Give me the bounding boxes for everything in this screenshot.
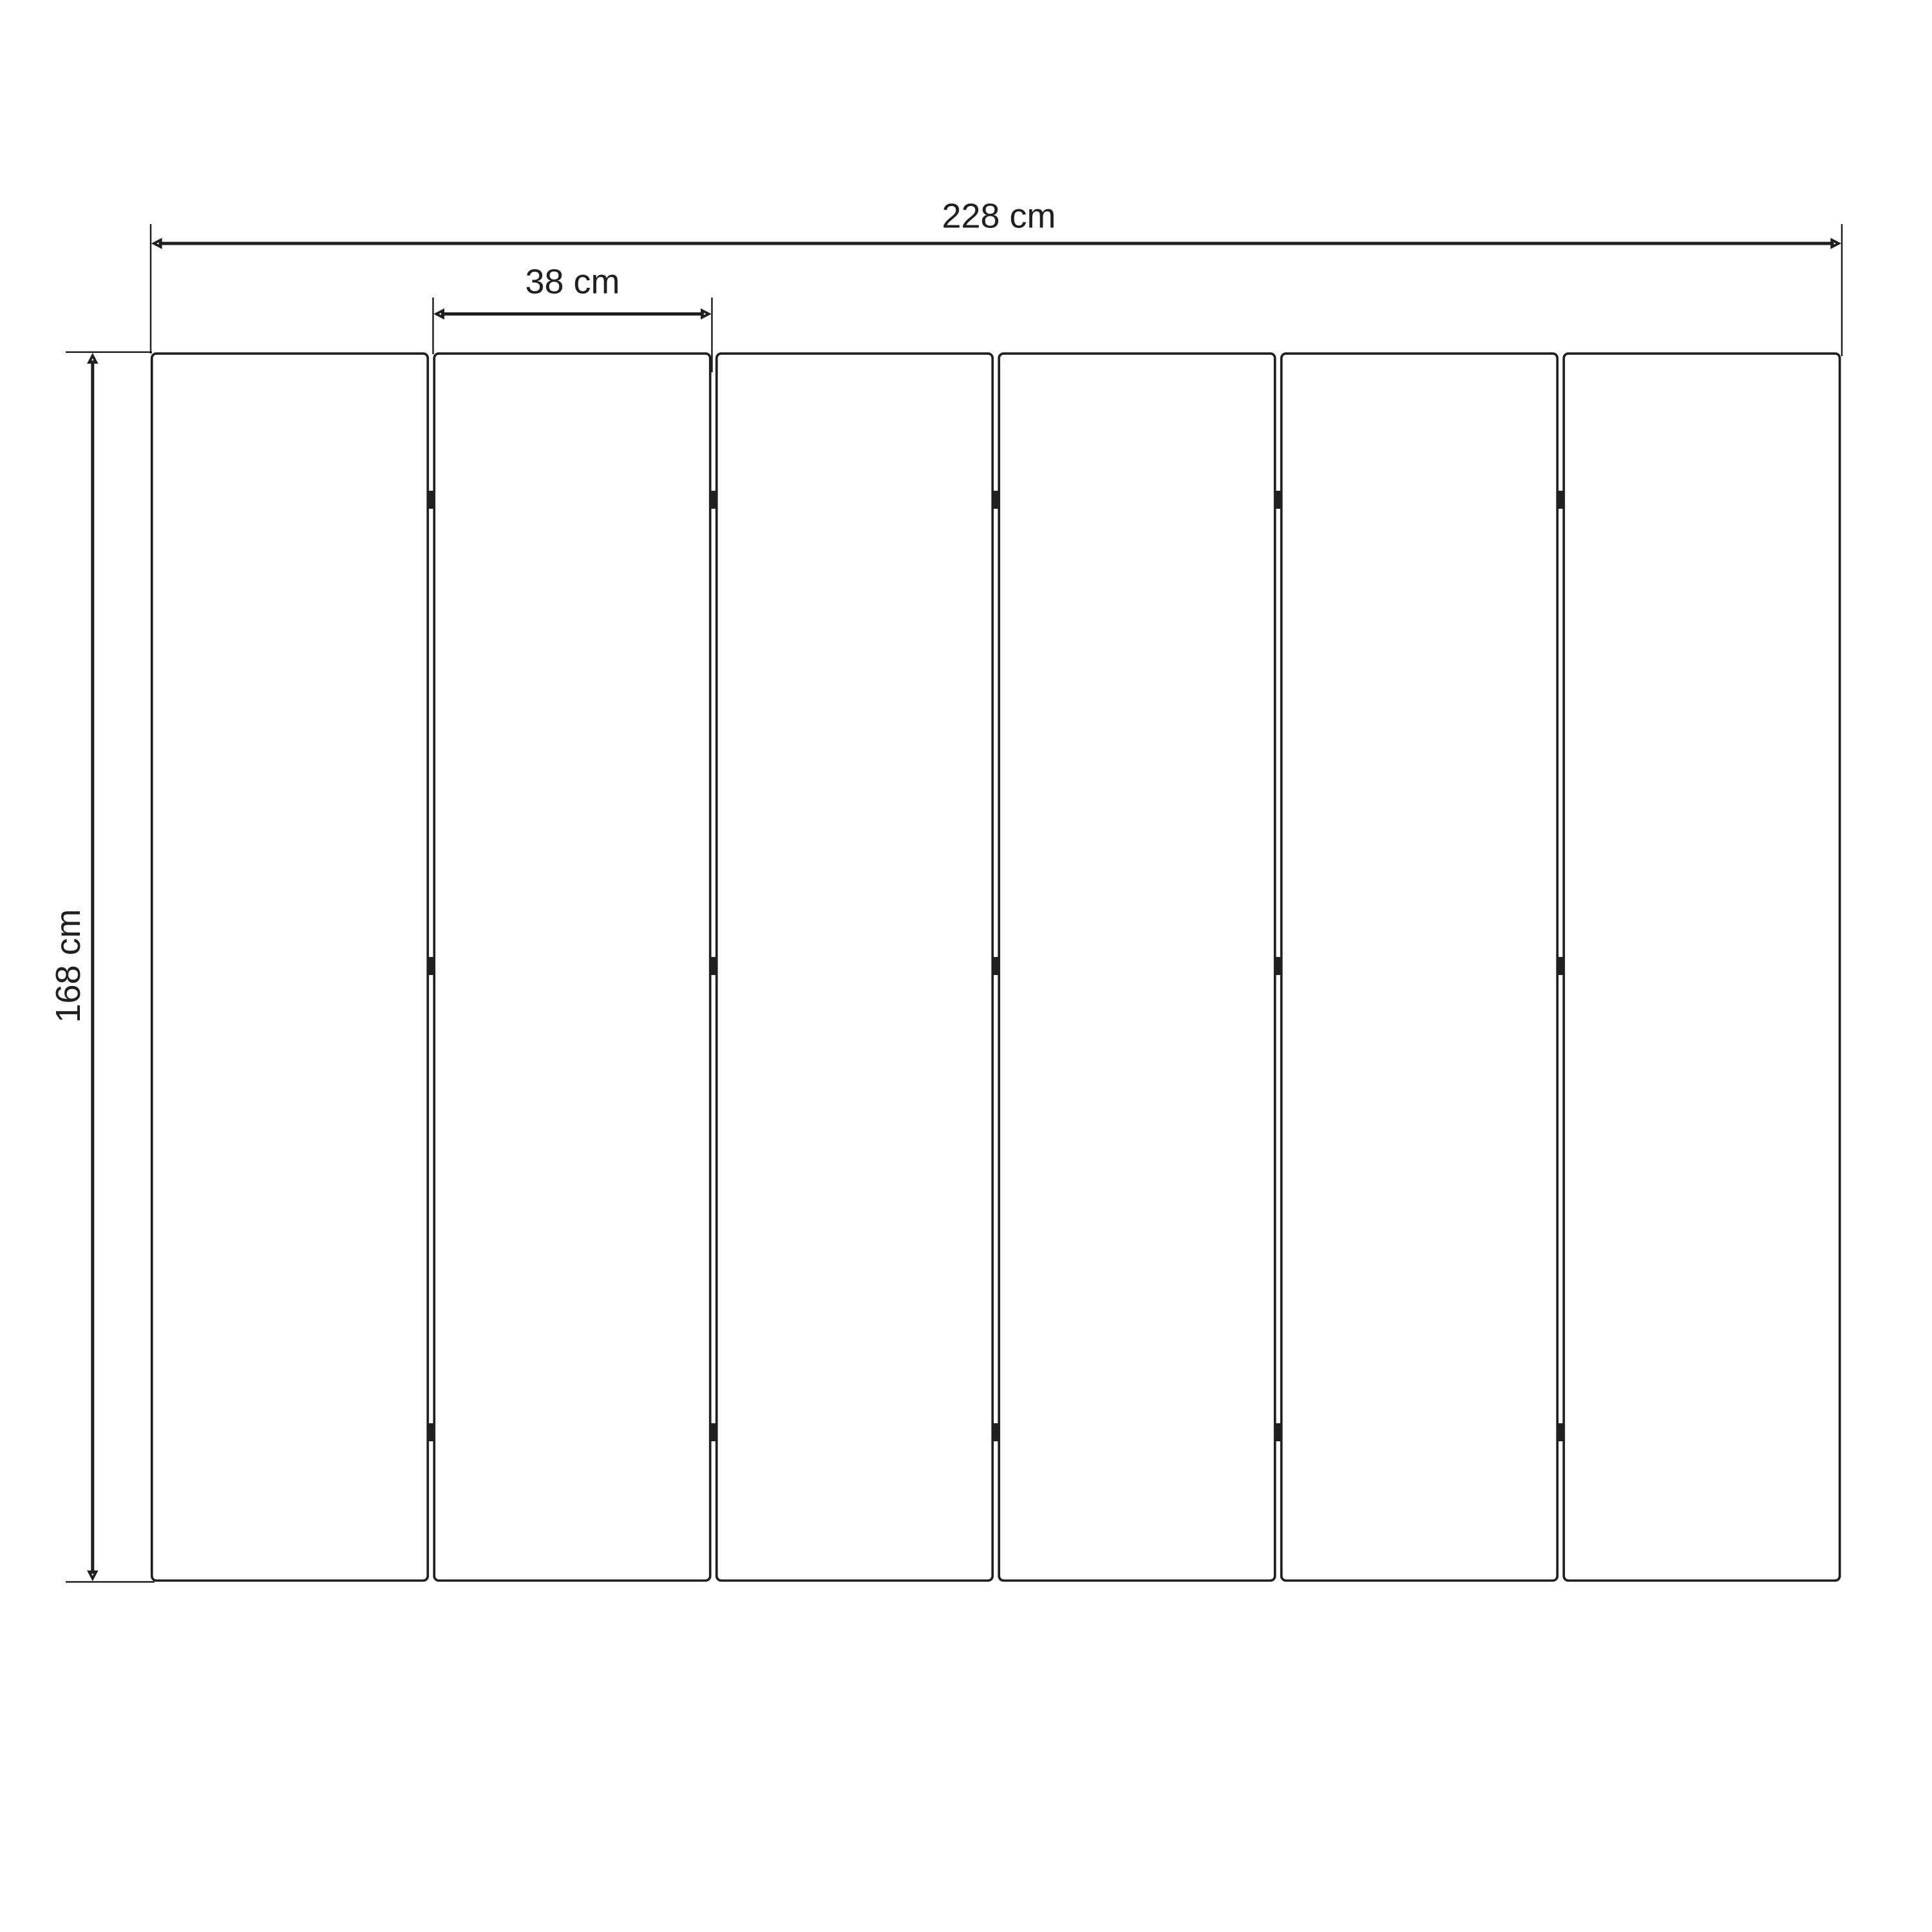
svg-text:168 cm: 168 cm	[49, 909, 88, 1023]
svg-text:38 cm: 38 cm	[525, 263, 620, 301]
svg-text:228 cm: 228 cm	[942, 197, 1056, 236]
